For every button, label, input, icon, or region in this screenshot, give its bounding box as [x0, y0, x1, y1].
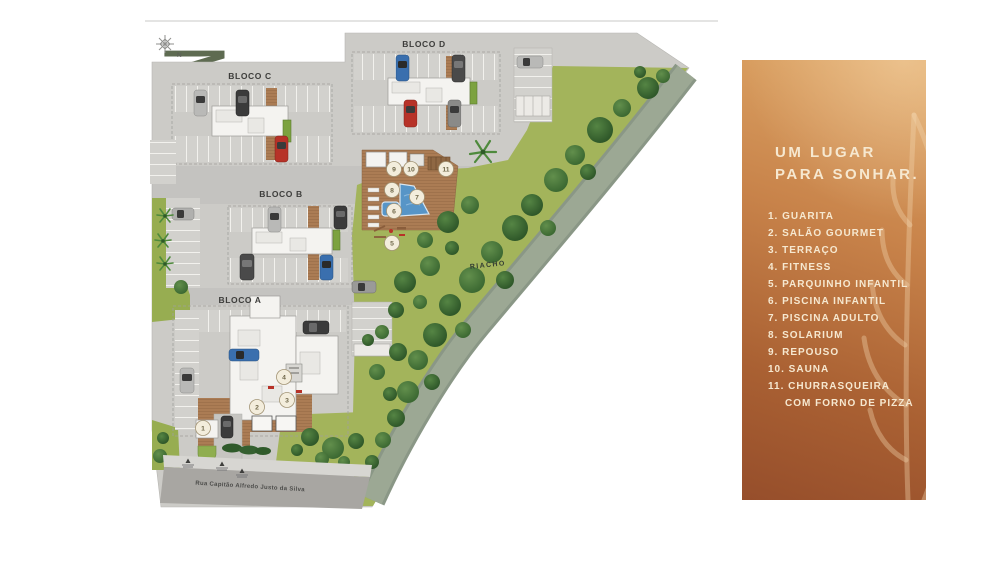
bloco-b-label: BLOCO B — [259, 189, 302, 199]
svg-text:2: 2 — [255, 405, 259, 412]
compass-icon — [156, 35, 174, 53]
car — [172, 208, 194, 220]
car — [240, 254, 254, 280]
legend-item: 10. SAUNA — [768, 361, 914, 378]
car — [396, 55, 409, 81]
legend-item-continuation: COM FORNO DE PIZZA — [768, 395, 914, 412]
car — [517, 56, 543, 68]
map-marker-1: 1 — [196, 421, 211, 436]
svg-text:7: 7 — [415, 195, 419, 202]
legend-item: 9. REPOUSO — [768, 344, 914, 361]
car — [448, 100, 461, 127]
map-marker-7: 7 — [410, 190, 425, 205]
car — [236, 90, 249, 116]
svg-text:4: 4 — [282, 375, 286, 382]
legend-list: 1. GUARITA 2. SALÃO GOURMET 3. TERRAÇO 4… — [768, 208, 914, 412]
svg-text:9: 9 — [392, 167, 396, 174]
svg-text:10: 10 — [407, 167, 415, 174]
legend-item: 2. SALÃO GOURMET — [768, 225, 914, 242]
svg-text:5: 5 — [390, 241, 394, 248]
map-marker-11: 11 — [439, 162, 454, 177]
legend-item: 11. CHURRASQUEIRA — [768, 378, 914, 395]
bloco-a-label: BLOCO A — [218, 295, 261, 305]
legend-item: 8. SOLARIUM — [768, 327, 914, 344]
map-marker-9: 9 — [387, 162, 402, 177]
car — [229, 349, 259, 361]
svg-text:3: 3 — [285, 398, 289, 405]
map-marker-4: 4 — [277, 370, 292, 385]
map-marker-5: 5 — [385, 236, 400, 251]
map-marker-8: 8 — [385, 183, 400, 198]
legend-item: 4. FITNESS — [768, 259, 914, 276]
compass-label: N — [177, 52, 182, 59]
car — [180, 368, 194, 393]
svg-text:6: 6 — [392, 209, 396, 216]
car — [275, 136, 288, 162]
car — [221, 416, 233, 438]
car — [334, 206, 347, 229]
car — [452, 55, 465, 82]
legend-panel: UM LUGAR PARA SONHAR. 1. GUARITA 2. SALÃ… — [742, 60, 926, 500]
map-marker-2: 2 — [250, 400, 265, 415]
svg-text:11: 11 — [442, 167, 449, 174]
bloco-d-label: BLOCO D — [402, 39, 445, 49]
legend-item: 5. PARQUINHO INFANTIL — [768, 276, 914, 293]
car — [404, 100, 417, 127]
car — [352, 281, 376, 293]
panel-heading-line1: UM LUGAR — [775, 142, 919, 164]
legend-item: 1. GUARITA — [768, 208, 914, 225]
page: MASTERPLAN N — [0, 0, 1000, 563]
svg-text:8: 8 — [390, 188, 394, 195]
map-marker-10: 10 — [404, 162, 419, 177]
map-marker-3: 3 — [280, 393, 295, 408]
car — [194, 90, 207, 116]
car — [268, 207, 281, 232]
legend-item: 3. TERRAÇO — [768, 242, 914, 259]
legend-item: 6. PISCINA INFANTIL — [768, 293, 914, 310]
car — [320, 255, 333, 280]
svg-text:1: 1 — [201, 426, 205, 433]
map-marker-6: 6 — [387, 204, 402, 219]
car — [303, 321, 329, 334]
panel-heading: UM LUGAR PARA SONHAR. — [775, 142, 919, 186]
bloco-c-label: BLOCO C — [228, 71, 271, 81]
panel-heading-line2: PARA SONHAR. — [775, 164, 919, 186]
legend-item: 7. PISCINA ADULTO — [768, 310, 914, 327]
